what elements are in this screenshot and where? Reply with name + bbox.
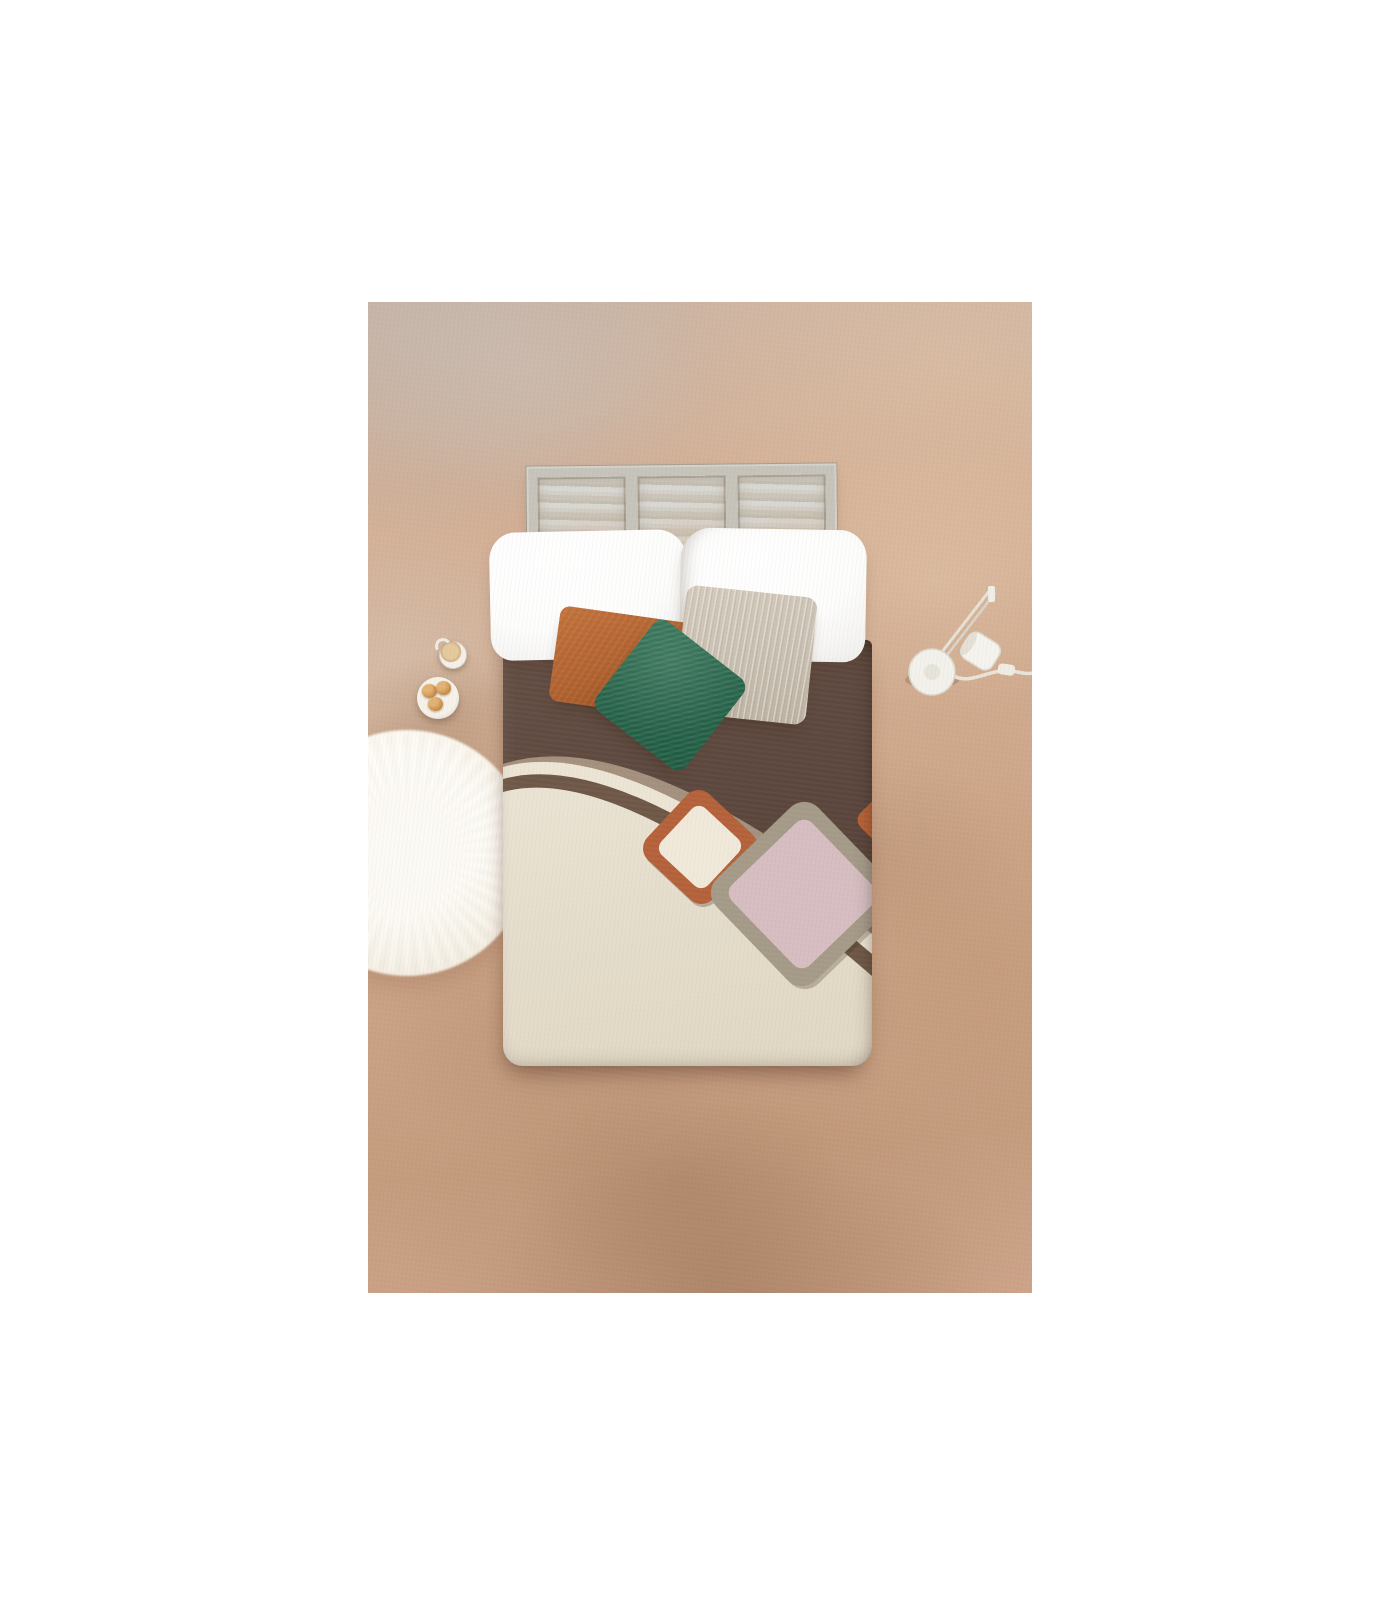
pastry bbox=[422, 684, 437, 698]
pastry-plate bbox=[417, 677, 459, 719]
lamp-arm-bracket bbox=[988, 586, 995, 602]
lamp-base-hub bbox=[924, 664, 940, 680]
pastry bbox=[428, 697, 443, 711]
task-lamp bbox=[892, 574, 1032, 696]
cup-handle bbox=[434, 637, 453, 656]
coffee-cup bbox=[439, 641, 467, 669]
lamp-cable bbox=[950, 671, 1032, 679]
photo-canvas bbox=[368, 302, 1032, 1293]
lamp-cable-switch bbox=[997, 663, 1015, 676]
pastry bbox=[436, 681, 451, 695]
